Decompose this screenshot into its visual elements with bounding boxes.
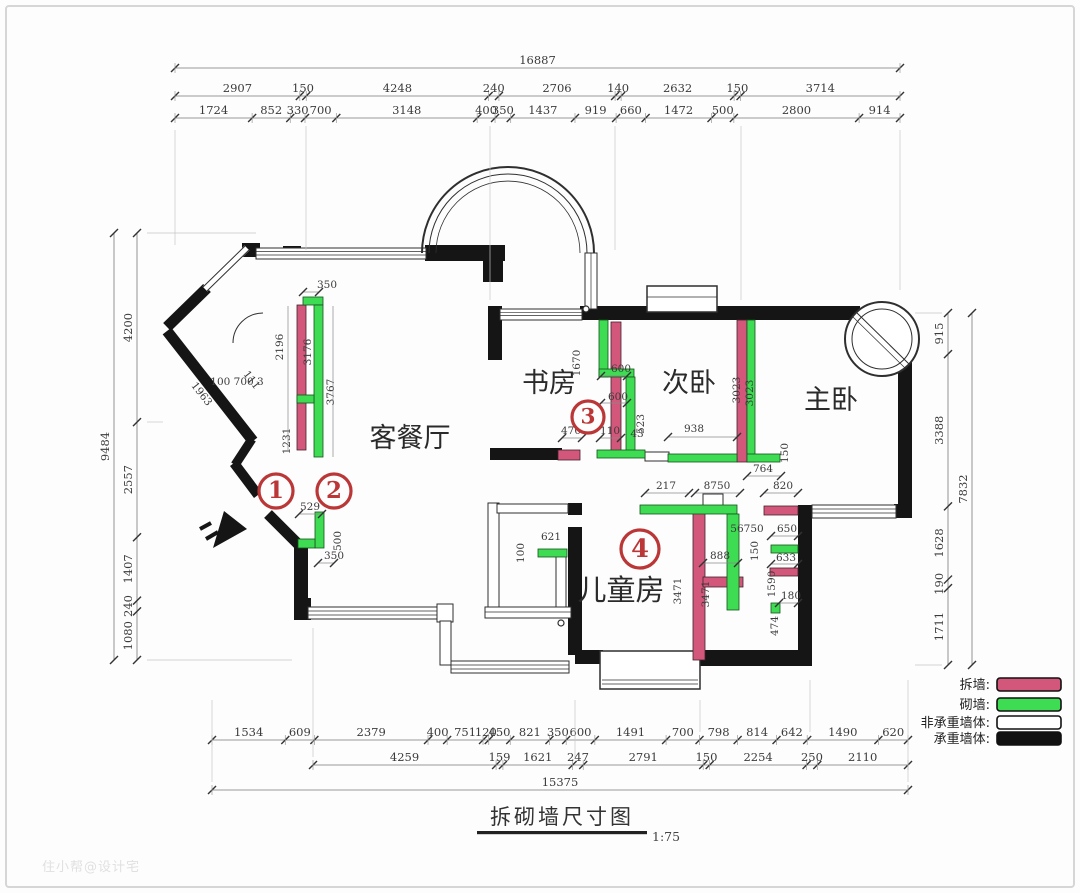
wall-balcony-corner (483, 245, 503, 282)
door-swing-arc (233, 313, 263, 343)
dim-label: 140 (607, 81, 629, 95)
interior-dim-label: 2196 (274, 333, 286, 360)
wall-bath-inner (556, 556, 566, 614)
room-label-living: 客餐厅 (370, 423, 451, 454)
bay-window-kids (600, 651, 700, 689)
drawing-scale: 1:75 (652, 829, 680, 844)
wall-secondbed-bottom (645, 452, 669, 461)
dim-label: 1472 (664, 103, 693, 117)
build-wall-segment (597, 450, 645, 458)
dim-label: 4248 (383, 81, 412, 95)
dim-label: 240 (121, 595, 135, 617)
dim-label: 798 (708, 725, 730, 739)
dim-label: 150 (695, 750, 717, 764)
wall-kids-left-top (568, 503, 582, 515)
legend-item-demolish-wall: 拆墙: (960, 678, 1061, 693)
window-master-bottom (812, 505, 896, 518)
interior-dim-label: 621 (541, 531, 561, 543)
dim-label: 9484 (98, 432, 112, 461)
window-study-top (500, 309, 582, 320)
interior-dim-label: 3471 (700, 581, 712, 608)
dim-label: 814 (746, 725, 768, 739)
room-label-second_bedroom: 次卧 (662, 368, 716, 399)
dim-label: 350 (547, 725, 569, 739)
wall-entry-vertical (294, 545, 308, 605)
dim-label: 821 (519, 725, 541, 739)
legend-swatch (997, 678, 1061, 691)
title-underline (477, 831, 647, 834)
dim-label: 1621 (523, 750, 552, 764)
dim-label: 4259 (390, 750, 419, 764)
interior-dim-label: 3767 (325, 379, 337, 406)
dim-label: 1080 (121, 621, 135, 650)
legend-label: 砌墙: (960, 698, 990, 713)
interior-dim-label: 500 (332, 531, 344, 551)
interior-dim-label: 217 (656, 480, 676, 492)
interior-dim-label: 3023 (744, 380, 756, 407)
legend-swatch (997, 698, 1061, 711)
dim-label: 2706 (542, 81, 571, 95)
window-living-bottom (308, 607, 440, 619)
interior-dim-label: 100 700 3 (210, 376, 263, 388)
room-label-master_bedroom: 主卧 (804, 385, 858, 416)
dim-label: 642 (781, 725, 803, 739)
legend-label: 拆墙: (960, 678, 990, 693)
dim-label: 2632 (663, 81, 692, 95)
interior-dim-label: 474 (769, 616, 781, 636)
dim-label: 2110 (848, 750, 877, 764)
demolish-build-walls-layer (297, 297, 798, 660)
interior-dim-label: 764 (753, 463, 773, 475)
entry-arrow-tail (200, 523, 211, 529)
dimension-layer: 1688729071504248240270614026321503714172… (98, 53, 976, 795)
interior-dim-label: 8750 (704, 480, 731, 492)
dim-label: 15375 (542, 775, 579, 789)
interior-dim-label: 43 (630, 428, 643, 440)
wall-study-bottom (490, 448, 562, 460)
dim-label: 700 (672, 725, 694, 739)
window-line (207, 250, 249, 291)
marker-circled-1: 1 (259, 474, 293, 508)
legend-swatch (997, 716, 1061, 729)
wall-bedrooms-top (580, 306, 860, 320)
marker-circled-3: 3 (572, 401, 604, 433)
build-wall-segment (640, 505, 737, 514)
dim-label: 150 (726, 81, 748, 95)
interior-dim-label: 1231 (281, 428, 293, 455)
round-bay-window-inner (852, 309, 912, 369)
interior-dim-label: 150 (749, 541, 761, 561)
wall-bath-top (497, 504, 568, 513)
wall-master-corner (894, 504, 912, 518)
dim-label: 915 (932, 323, 946, 345)
interior-dim-label: 56750 (730, 523, 763, 535)
dim-label: 700 (310, 103, 332, 117)
wall-bath-left (488, 503, 499, 613)
marker-number: 4 (631, 534, 649, 564)
marker-circled-4: 4 (621, 530, 659, 568)
build-wall-segment (314, 305, 323, 457)
interior-dim-label: 820 (773, 480, 793, 492)
door-pivot (558, 620, 564, 626)
dim-label: 1724 (199, 103, 228, 117)
door-pivot (583, 306, 589, 312)
interior-dim-label: 650 (777, 523, 797, 535)
build-wall-segment (747, 454, 780, 462)
interior-dim-label: 529 (300, 501, 320, 513)
interior-dim-label: 350 (317, 279, 337, 291)
legend-item-load-bearing-wall: 承重墙体: (934, 731, 1061, 747)
interior-dim-label: 3176 (302, 338, 314, 365)
drawing-title: 拆砌墙尺寸图 (490, 805, 634, 829)
dim-label: 2379 (357, 725, 386, 739)
marker-number: 1 (268, 477, 284, 504)
balcony-arc-outer (422, 167, 594, 253)
demolish-wall-segment (558, 450, 580, 460)
demolish-wall-segment (297, 305, 306, 450)
dim-label: 3714 (806, 81, 835, 95)
legend: 拆墙:砌墙:非承重墙体:承重墙体: (921, 678, 1061, 747)
legend-label: 承重墙体: (934, 731, 990, 747)
interior-dim-label: 180 (781, 590, 801, 602)
dim-label: 751 (454, 725, 476, 739)
legend-item-build-wall: 砌墙: (960, 698, 1061, 713)
window-bath-bottom (485, 607, 571, 618)
interior-dim-label: 150 (779, 443, 791, 463)
room-label-kids_room: 儿童房 (577, 573, 664, 607)
dim-label: 1490 (828, 725, 857, 739)
dim-label: 2800 (782, 103, 811, 117)
entry-arrow-icon (213, 511, 247, 548)
wall-kids-right (798, 505, 812, 652)
interior-dim-label: 3471 (672, 578, 684, 605)
dim-label: 2557 (121, 465, 135, 494)
load-bearing-walls-layer (167, 243, 912, 666)
wall-diagonal-entry-upper (234, 463, 258, 495)
closet-protrusion (647, 286, 717, 312)
build-wall-segment (297, 395, 314, 403)
legend-swatch (997, 732, 1061, 745)
dim-label: 1534 (234, 725, 263, 739)
build-wall-segment (298, 539, 315, 548)
dim-label: 450 (489, 725, 511, 739)
wall-kids-bottom (698, 650, 812, 666)
dim-label: 1491 (616, 725, 645, 739)
dim-label: 400 (427, 725, 449, 739)
interior-dim-label: 938 (684, 423, 704, 435)
room-label-study: 书房 (522, 368, 576, 399)
window-bottom-middle (451, 661, 569, 673)
build-wall-segment (668, 454, 737, 462)
dim-label: 660 (620, 103, 642, 117)
floorplan-svg: 1688729071504248240270614026321503714172… (0, 0, 1080, 893)
legend-item-non-load-bearing-wall: 非承重墙体: (921, 715, 1061, 731)
interior-dim-label: 1590 (766, 571, 778, 598)
wall-kids-bottom-left (575, 650, 603, 664)
dim-label: 2254 (743, 750, 772, 764)
dim-label: 1711 (932, 612, 946, 641)
window-diagonal (205, 248, 247, 289)
dim-label: 500 (712, 103, 734, 117)
dim-label: 4200 (121, 313, 135, 342)
interior-dim-label: 3023 (731, 377, 743, 404)
interior-dim-label: 633 (776, 552, 796, 564)
marker-number: 3 (580, 405, 595, 430)
wall-tab (703, 494, 723, 506)
window-line (203, 246, 245, 287)
interior-dim-label: 600 (611, 363, 631, 375)
dim-label: 2791 (629, 750, 658, 764)
build-wall-segment (538, 549, 567, 557)
dim-label: 7832 (956, 474, 970, 503)
dim-label: 609 (289, 725, 311, 739)
window-topleft (256, 248, 426, 259)
build-wall-segment (626, 377, 635, 452)
demolish-wall-segment (764, 506, 798, 515)
dim-label: 3148 (392, 103, 421, 117)
wall-vertical-thin (440, 621, 451, 665)
dim-label: 914 (869, 103, 891, 117)
wall-step-block (437, 604, 453, 622)
dim-label: 1628 (932, 528, 946, 557)
dim-label: 600 (570, 725, 592, 739)
wall-diagonal-topleft (167, 288, 207, 327)
dim-label: 16887 (519, 53, 556, 67)
dim-label: 1437 (528, 103, 557, 117)
dim-label: 620 (882, 725, 904, 739)
dim-label: 919 (585, 103, 607, 117)
dim-label: 852 (260, 103, 282, 117)
interior-dim-label: 350 (324, 550, 344, 562)
interior-dim-label: 600 (608, 391, 628, 403)
wall-master-right (898, 358, 912, 508)
floorplan-canvas: 1688729071504248240270614026321503714172… (0, 0, 1080, 893)
dim-label: 3388 (932, 416, 946, 445)
title-block: 拆砌墙尺寸图 1:75 (477, 805, 680, 844)
build-wall-segment (599, 320, 608, 377)
dim-label: 2907 (223, 81, 252, 95)
interior-dim-label: 100 (515, 543, 527, 563)
marker-circled-2: 2 (317, 474, 351, 508)
wall-diagonal-entry-lower (268, 514, 301, 547)
dim-label: 159 (489, 750, 511, 764)
build-wall-segment (303, 297, 323, 305)
legend-label: 非承重墙体: (921, 715, 990, 731)
watermark: 住小帮@设计宅 (42, 856, 140, 875)
interior-dim-label: 888 (710, 550, 730, 562)
marker-number: 2 (326, 477, 342, 504)
dim-label: 1407 (121, 554, 135, 583)
dim-label: 150 (292, 81, 314, 95)
build-wall-segment (771, 603, 780, 613)
